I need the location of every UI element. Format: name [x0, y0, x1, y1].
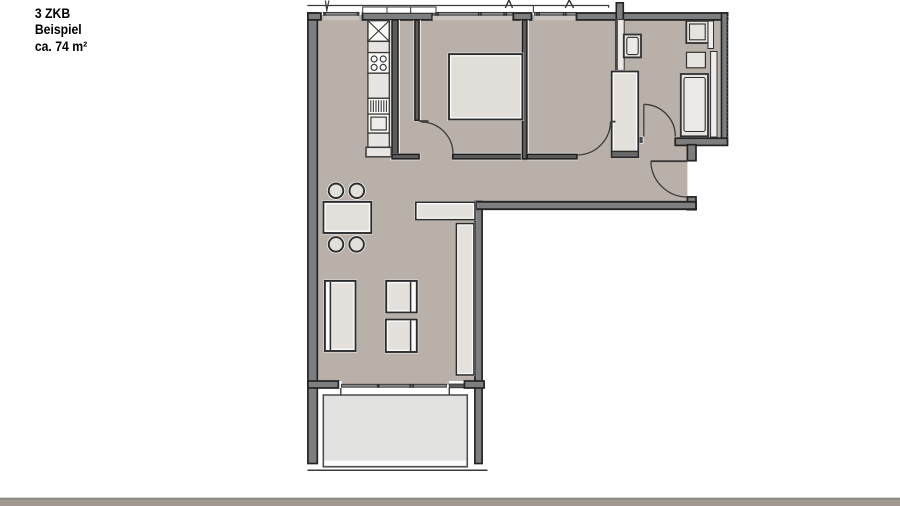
svg-text:3 ZKB: 3 ZKB: [35, 6, 70, 22]
svg-text:ca. 74 m²: ca. 74 m²: [35, 38, 88, 54]
svg-text:Beispiel: Beispiel: [35, 22, 82, 38]
